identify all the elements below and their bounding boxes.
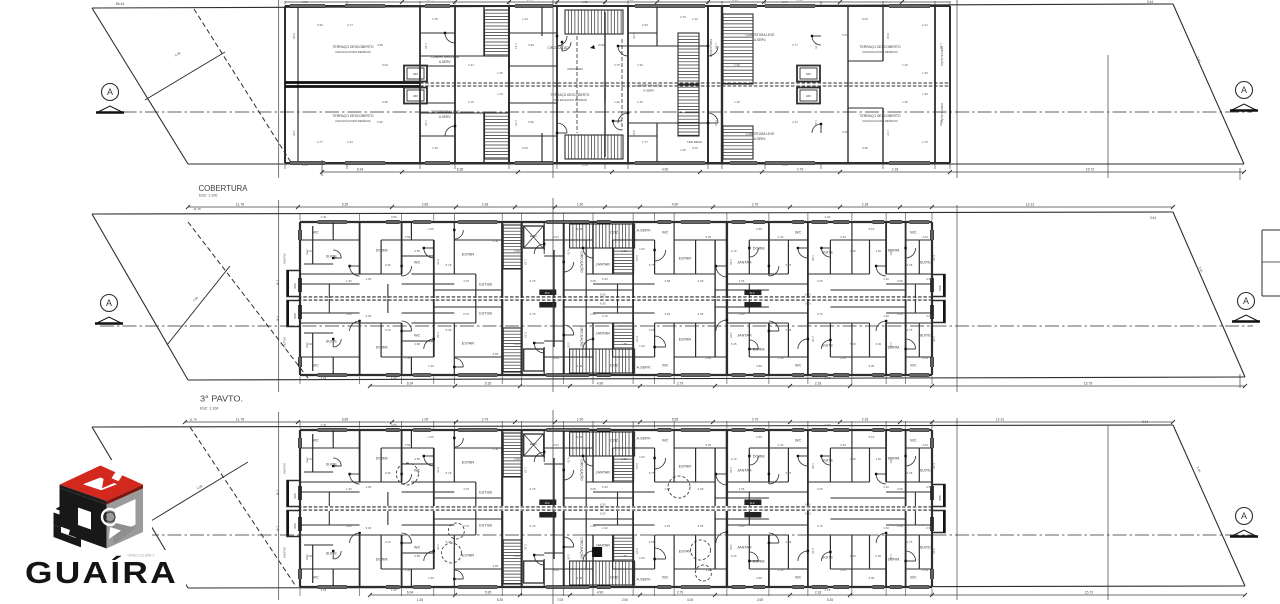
svg-text:A: A (1241, 511, 1247, 521)
svg-text:6.30: 6.30 (366, 526, 372, 530)
svg-text:5.35: 5.35 (577, 435, 583, 439)
svg-text:6.30: 6.30 (805, 302, 811, 306)
svg-text:7.05: 7.05 (557, 598, 563, 602)
svg-text:0.75: 0.75 (635, 548, 639, 554)
svg-text:1.00: 1.00 (897, 312, 903, 316)
svg-text:6.30: 6.30 (385, 471, 391, 475)
svg-text:2.68: 2.68 (514, 249, 520, 253)
svg-text:3.95: 3.95 (632, 33, 636, 39)
svg-text:12.31: 12.31 (1026, 203, 1035, 207)
svg-text:1.40: 1.40 (883, 277, 889, 281)
svg-text:SAC.: SAC. (938, 495, 942, 502)
svg-text:1.35: 1.35 (627, 0, 634, 2)
svg-text:ESC: 1:100: ESC: 1:100 (199, 194, 217, 198)
svg-text:2.40: 2.40 (321, 215, 327, 219)
svg-text:CIRCULAÇÃO: CIRCULAÇÃO (940, 46, 945, 66)
svg-text:5.15: 5.15 (869, 227, 875, 231)
svg-text:1.50: 1.50 (366, 485, 372, 489)
svg-text:LBO: LBO (806, 72, 811, 76)
svg-text:2.55: 2.55 (825, 588, 831, 592)
svg-text:1.30: 1.30 (883, 314, 889, 318)
svg-text:WC: WC (414, 469, 421, 473)
svg-text:5.35: 5.35 (485, 382, 492, 386)
svg-text:2.18: 2.18 (892, 168, 899, 172)
svg-text:CIRCULAÇÃO: CIRCULAÇÃO (579, 460, 584, 481)
svg-text:4.90: 4.90 (597, 591, 604, 595)
svg-text:2.03: 2.03 (321, 588, 327, 592)
svg-text:4.75: 4.75 (463, 279, 469, 283)
svg-text:N.V.: N.V. (750, 291, 755, 295)
svg-text:1.50: 1.50 (797, 0, 804, 2)
svg-text:2.40: 2.40 (922, 443, 928, 447)
svg-text:2.55: 2.55 (926, 485, 932, 489)
svg-text:2.55: 2.55 (305, 457, 309, 463)
svg-text:5.35: 5.35 (446, 328, 452, 332)
svg-text:SAC.: SAC. (293, 523, 297, 530)
svg-text:1.90: 1.90 (637, 63, 643, 67)
svg-text:6.30: 6.30 (875, 554, 881, 558)
svg-text:SUITE: SUITE (326, 463, 338, 467)
svg-text:3.25: 3.25 (817, 279, 823, 283)
svg-text:1.30: 1.30 (493, 447, 499, 451)
svg-text:2.55: 2.55 (414, 457, 420, 461)
svg-text:5.35: 5.35 (932, 463, 936, 469)
svg-text:3° PAVTO.: 3° PAVTO. (200, 394, 243, 404)
svg-text:1.40: 1.40 (639, 344, 645, 348)
svg-text:6.30: 6.30 (602, 485, 608, 489)
svg-text:GALERIA: GALERIA (283, 463, 287, 475)
svg-text:2.10: 2.10 (850, 249, 856, 253)
svg-text:2.65: 2.65 (567, 554, 571, 560)
svg-text:4.90: 4.90 (672, 203, 679, 207)
svg-text:6.30: 6.30 (385, 263, 391, 267)
svg-text:2.68: 2.68 (514, 457, 520, 461)
svg-text:5.35: 5.35 (705, 443, 711, 447)
svg-text:1.40: 1.40 (778, 235, 784, 239)
svg-text:2.41: 2.41 (922, 23, 928, 27)
svg-text:2.68: 2.68 (414, 342, 420, 346)
svg-text:JANTAR: JANTAR (596, 544, 611, 548)
svg-text:2.75: 2.75 (922, 140, 928, 144)
svg-text:1.10: 1.10 (497, 92, 503, 96)
svg-text:2.77: 2.77 (792, 43, 798, 47)
svg-text:4.90: 4.90 (698, 279, 704, 283)
svg-text:1.45: 1.45 (637, 100, 643, 104)
svg-text:GALERIA: GALERIA (283, 547, 287, 559)
svg-text:15.79: 15.79 (1084, 382, 1093, 386)
svg-text:SAC.: SAC. (293, 313, 297, 320)
svg-text:GALERIA: GALERIA (283, 253, 287, 265)
svg-text:2.18: 2.18 (815, 382, 822, 386)
svg-text:1.10: 1.10 (582, 163, 588, 167)
svg-text:5.35: 5.35 (457, 168, 464, 172)
svg-text:1.50: 1.50 (739, 524, 745, 528)
svg-text:1.30: 1.30 (493, 239, 499, 243)
svg-text:A.SERV.: A.SERV. (637, 229, 652, 233)
svg-text:SUITE: SUITE (920, 546, 932, 550)
svg-text:3.05: 3.05 (391, 423, 397, 427)
svg-text:1.45: 1.45 (302, 163, 308, 167)
svg-text:WC: WC (662, 231, 669, 235)
svg-text:2.65: 2.65 (621, 457, 627, 461)
svg-text:2.68: 2.68 (664, 279, 670, 283)
svg-text:5.15: 5.15 (436, 467, 440, 473)
svg-text:A.SERV.: A.SERV. (637, 578, 652, 582)
svg-text:SUITE: SUITE (822, 556, 834, 560)
svg-text:SUITE: SUITE (822, 251, 834, 255)
svg-text:ESTUB: ESTUB (479, 283, 492, 287)
svg-text:3.95: 3.95 (382, 100, 388, 104)
svg-text:WC: WC (312, 364, 319, 368)
svg-text:6.30: 6.30 (805, 512, 811, 516)
svg-text:2.75: 2.75 (814, 43, 818, 49)
svg-text:5.15: 5.15 (731, 342, 737, 346)
svg-text:5.35: 5.35 (932, 255, 936, 261)
svg-text:1.30: 1.30 (346, 487, 352, 491)
svg-text:3.44: 3.44 (1150, 216, 1156, 220)
svg-text:2.10: 2.10 (602, 526, 608, 530)
svg-text:2.10: 2.10 (811, 548, 815, 554)
svg-text:6.30: 6.30 (805, 503, 811, 507)
svg-text:SAC.: SAC. (293, 493, 297, 500)
svg-text:WC: WC (795, 364, 802, 368)
svg-text:WC: WC (414, 261, 421, 265)
svg-text:5.35: 5.35 (869, 576, 875, 580)
svg-text:SAC.: SAC. (293, 283, 297, 290)
svg-text:0.90: 0.90 (377, 120, 383, 124)
svg-text:2.65: 2.65 (346, 312, 352, 316)
svg-text:3.05: 3.05 (590, 487, 596, 491)
svg-text:2.55: 2.55 (305, 249, 309, 255)
svg-text:2.03: 2.03 (553, 443, 559, 447)
svg-text:2.68: 2.68 (889, 457, 893, 463)
svg-text:4.90: 4.90 (729, 332, 733, 338)
svg-text:5.35: 5.35 (827, 598, 833, 602)
svg-text:1.30: 1.30 (778, 356, 784, 360)
svg-text:5.35: 5.35 (705, 235, 711, 239)
svg-text:2.68: 2.68 (889, 249, 893, 255)
svg-text:CIRCULAÇÃO: CIRCULAÇÃO (579, 326, 584, 347)
svg-text:CIRCULAÇÃO: CIRCULAÇÃO (579, 538, 584, 559)
svg-text:3.05: 3.05 (897, 279, 903, 283)
svg-text:3.25: 3.25 (907, 471, 913, 475)
svg-text:1.10: 1.10 (939, 43, 943, 49)
svg-text:5.15: 5.15 (850, 554, 856, 558)
svg-text:A.SERV.: A.SERV. (439, 115, 452, 119)
svg-text:4.75: 4.75 (567, 249, 571, 255)
svg-text:1.35: 1.35 (424, 120, 428, 126)
svg-text:5.15: 5.15 (446, 471, 452, 475)
svg-text:2.55: 2.55 (926, 277, 932, 281)
svg-text:2.41: 2.41 (792, 120, 798, 124)
svg-text:LBO: LBO (413, 72, 418, 76)
svg-text:3.95: 3.95 (528, 43, 534, 47)
svg-text:A.SERV.: A.SERV. (439, 60, 452, 64)
svg-text:1.50: 1.50 (405, 235, 411, 239)
svg-text:2.40: 2.40 (840, 235, 846, 239)
svg-text:1.40: 1.40 (889, 554, 893, 560)
svg-text:2.75: 2.75 (680, 15, 686, 19)
svg-text:4.90: 4.90 (553, 568, 559, 572)
svg-text:DORM.: DORM. (376, 457, 389, 461)
svg-text:2.68: 2.68 (926, 314, 932, 318)
svg-text:5.15: 5.15 (436, 259, 440, 265)
svg-text:0.75: 0.75 (786, 263, 792, 267)
svg-text:JANTAR: JANTAR (737, 261, 752, 265)
svg-text:2.68: 2.68 (756, 576, 762, 580)
svg-text:LBO: LBO (806, 94, 811, 98)
svg-text:DORM.: DORM. (376, 249, 389, 253)
svg-text:5.35: 5.35 (577, 227, 583, 231)
svg-text:2.68: 2.68 (436, 544, 440, 550)
svg-text:(USO EXCLUSIVO RESÍDUO): (USO EXCLUSIVO RESÍDUO) (862, 119, 898, 123)
svg-text:A.SERV.: A.SERV. (637, 366, 652, 370)
svg-text:3.25: 3.25 (932, 548, 936, 554)
svg-text:DORM.: DORM. (376, 558, 389, 562)
svg-text:2.18: 2.18 (482, 203, 489, 207)
svg-text:2.68: 2.68 (664, 487, 670, 491)
svg-text:A.SERV.: A.SERV. (754, 137, 767, 141)
svg-text:1.00: 1.00 (428, 435, 434, 439)
svg-text:2.55: 2.55 (756, 227, 762, 231)
svg-text:2.03: 2.03 (922, 568, 928, 572)
svg-text:COBERTURA LEVE: COBERTURA LEVE (746, 33, 775, 37)
svg-text:1.35: 1.35 (902, 100, 908, 104)
svg-text:6.30: 6.30 (805, 293, 811, 297)
svg-text:5.35: 5.35 (497, 598, 503, 602)
svg-text:2.03: 2.03 (635, 255, 639, 261)
svg-text:6.30: 6.30 (729, 259, 733, 265)
svg-text:2.77: 2.77 (347, 23, 353, 27)
svg-text:2.77: 2.77 (317, 140, 323, 144)
svg-text:2.75: 2.75 (514, 120, 518, 126)
svg-text:4.75: 4.75 (907, 540, 913, 544)
svg-text:+5.00: +5.00 (597, 43, 605, 47)
svg-text:2.55: 2.55 (414, 249, 420, 253)
svg-text:JANTAR: JANTAR (596, 332, 611, 336)
svg-text:PENDURAL: PENDURAL (603, 88, 607, 103)
svg-text:3.44: 3.44 (1147, 0, 1153, 4)
svg-text:2.40: 2.40 (840, 443, 846, 447)
svg-text:1.40: 1.40 (883, 485, 889, 489)
svg-text:1.40: 1.40 (639, 556, 645, 560)
svg-text:5.15: 5.15 (731, 554, 737, 558)
svg-text:1.00: 1.00 (305, 554, 309, 560)
svg-text:2.40: 2.40 (321, 423, 327, 427)
svg-text:WC: WC (312, 231, 319, 235)
svg-text:A: A (1241, 85, 1247, 95)
svg-text:4.90: 4.90 (825, 423, 831, 427)
svg-text:2.41: 2.41 (514, 43, 518, 49)
svg-text:2.65: 2.65 (493, 352, 499, 356)
svg-text:2.68: 2.68 (926, 526, 932, 530)
svg-text:1.50: 1.50 (621, 554, 627, 558)
svg-text:1.00: 1.00 (305, 342, 309, 348)
svg-text:A: A (1243, 296, 1249, 306)
svg-text:2.65: 2.65 (346, 524, 352, 528)
svg-text:2.41: 2.41 (468, 63, 474, 67)
svg-text:1.90: 1.90 (814, 120, 818, 126)
svg-text:6.30: 6.30 (729, 467, 733, 473)
svg-text:ESTAR: ESTAR (679, 257, 692, 261)
svg-text:N.V.: N.V. (750, 501, 755, 505)
svg-text:0.90: 0.90 (317, 23, 323, 27)
svg-text:1.90: 1.90 (577, 418, 584, 422)
svg-text:1.30: 1.30 (524, 467, 528, 473)
svg-text:TER.DESC.: TER.DESC. (687, 140, 703, 144)
svg-text:GALERIA: GALERIA (283, 337, 287, 349)
svg-text:1.30: 1.30 (346, 279, 352, 283)
svg-text:COZ.: COZ. (610, 231, 619, 235)
svg-text:WC: WC (312, 576, 319, 580)
svg-text:SUITE: SUITE (920, 261, 932, 265)
svg-text:SUITE: SUITE (920, 334, 932, 338)
svg-text:ELEV.: ELEV. (530, 234, 537, 238)
svg-text:DORM.: DORM. (753, 348, 766, 352)
svg-text:COBERTURA LEVE: COBERTURA LEVE (746, 132, 775, 136)
svg-text:2.79: 2.79 (677, 591, 684, 595)
svg-text:ESTUB: ESTUB (479, 491, 492, 495)
svg-text:N.V.: N.V. (545, 501, 550, 505)
svg-text:(USO EXCLUSIVO RESÍDUO): (USO EXCLUSIVO RESÍDUO) (335, 50, 371, 54)
svg-text:4.90: 4.90 (825, 215, 831, 219)
svg-text:A.SERV.: A.SERV. (754, 38, 767, 42)
svg-text:2.03: 2.03 (922, 356, 928, 360)
svg-text:1.90: 1.90 (614, 100, 620, 104)
svg-text:3.05: 3.05 (786, 328, 792, 332)
svg-text:1.40: 1.40 (428, 364, 434, 368)
svg-text:5.35: 5.35 (524, 332, 528, 338)
svg-text:A.SERV.: A.SERV. (643, 89, 655, 93)
svg-text:DORM.: DORM. (753, 247, 766, 251)
svg-text:56.44: 56.44 (116, 2, 125, 6)
svg-text:TERRAÇO DESCOBERTO: TERRAÇO DESCOBERTO (551, 93, 590, 97)
svg-text:WC: WC (795, 439, 802, 443)
svg-text:15.72: 15.72 (1086, 168, 1095, 172)
svg-text:0.75: 0.75 (530, 312, 536, 316)
svg-text:2.41: 2.41 (782, 163, 788, 167)
svg-text:1.90: 1.90 (734, 63, 740, 67)
svg-text:1.05: 1.05 (422, 418, 429, 422)
svg-text:3.25: 3.25 (907, 263, 913, 267)
svg-text:SUITE: SUITE (822, 344, 834, 348)
svg-text:0.75: 0.75 (463, 524, 469, 528)
svg-text:0.75: 0.75 (530, 524, 536, 528)
svg-text:4.75: 4.75 (817, 524, 823, 528)
svg-text:5.35: 5.35 (485, 591, 492, 595)
svg-text:3.25: 3.25 (514, 554, 520, 558)
svg-text:6.30: 6.30 (600, 503, 606, 507)
svg-text:WC: WC (910, 364, 917, 368)
svg-text:11.78: 11.78 (193, 207, 201, 211)
svg-text:2.10: 2.10 (850, 457, 856, 461)
svg-text:2.05: 2.05 (732, 0, 739, 2)
svg-text:2.10: 2.10 (731, 457, 737, 461)
svg-text:11.78: 11.78 (236, 418, 244, 422)
svg-text:ESTUB: ESTUB (479, 312, 492, 316)
svg-text:6.85: 6.85 (342, 418, 349, 422)
svg-text:A: A (106, 298, 112, 308)
svg-text:2.79: 2.79 (797, 168, 804, 172)
svg-text:2.79: 2.79 (752, 418, 759, 422)
svg-text:ESTAR: ESTAR (462, 253, 475, 257)
svg-text:4.90: 4.90 (729, 544, 733, 550)
svg-text:0.75: 0.75 (635, 336, 639, 342)
svg-text:ESTAR: ESTAR (462, 554, 475, 558)
svg-text:1.30: 1.30 (778, 568, 784, 572)
svg-text:1.30: 1.30 (524, 259, 528, 265)
svg-text:(USO EXCLUSIVO RESÍDUO): (USO EXCLUSIVO RESÍDUO) (335, 119, 371, 123)
svg-text:5.15: 5.15 (850, 342, 856, 346)
svg-text:3.25: 3.25 (932, 336, 936, 342)
svg-text:ESTAR: ESTAR (462, 342, 475, 346)
svg-text:WC: WC (795, 231, 802, 235)
svg-text:11.78: 11.78 (236, 203, 244, 207)
svg-text:3.05: 3.05 (590, 279, 596, 283)
svg-text:1.10: 1.10 (692, 17, 698, 21)
svg-text:COBERTURA: COBERTURA (199, 183, 248, 193)
svg-text:2.77: 2.77 (642, 140, 648, 144)
svg-text:1.90: 1.90 (577, 203, 584, 207)
svg-text:0.75: 0.75 (786, 471, 792, 475)
svg-text:1.40: 1.40 (527, 0, 534, 2)
svg-text:ESC: 1:100: ESC: 1:100 (200, 407, 218, 411)
svg-text:2.79: 2.79 (752, 203, 759, 207)
svg-text:(USO EXCLUSIVO RESÍDUO): (USO EXCLUSIVO RESÍDUO) (553, 99, 587, 102)
svg-text:3.95: 3.95 (377, 43, 383, 47)
svg-text:6.30: 6.30 (600, 302, 606, 306)
svg-text:1.00: 1.00 (590, 524, 596, 528)
svg-text:2.65: 2.65 (567, 342, 571, 348)
svg-text:2.68: 2.68 (414, 554, 420, 558)
svg-text:DORM.: DORM. (376, 346, 389, 350)
svg-text:SAC.: SAC. (938, 285, 942, 292)
svg-text:3.25: 3.25 (664, 524, 670, 528)
svg-text:2.55: 2.55 (756, 435, 762, 439)
svg-text:1.00: 1.00 (639, 455, 645, 459)
svg-text:DORM.: DORM. (753, 560, 766, 564)
svg-text:4.75: 4.75 (530, 487, 536, 491)
svg-text:2.18: 2.18 (862, 203, 869, 207)
svg-text:3.05: 3.05 (786, 540, 792, 544)
svg-text:2.79: 2.79 (482, 418, 489, 422)
svg-text:1.45: 1.45 (432, 17, 438, 21)
svg-text:2.75: 2.75 (614, 63, 620, 67)
svg-text:WC: WC (662, 364, 669, 368)
svg-text:2.40: 2.40 (577, 364, 583, 368)
svg-text:1.35: 1.35 (714, 43, 718, 49)
svg-text:2.79: 2.79 (677, 382, 684, 386)
svg-text:JANTAR: JANTAR (596, 471, 611, 475)
svg-text:6.30: 6.30 (600, 512, 606, 516)
svg-text:2.68: 2.68 (436, 332, 440, 338)
svg-text:COBERTURA LEVE: COBERTURA LEVE (431, 110, 460, 114)
svg-text:LBO: LBO (413, 94, 418, 98)
svg-text:2.10: 2.10 (731, 249, 737, 253)
svg-text:2.18: 2.18 (815, 591, 822, 595)
svg-text:2.68: 2.68 (756, 364, 762, 368)
svg-text:2.40: 2.40 (705, 356, 711, 360)
svg-text:WC: WC (662, 576, 669, 580)
svg-text:2.10: 2.10 (385, 540, 391, 544)
svg-text:WC: WC (414, 546, 421, 550)
svg-text:4.75: 4.75 (530, 279, 536, 283)
svg-text:SUITE: SUITE (326, 552, 338, 556)
svg-text:2.75: 2.75 (468, 100, 474, 104)
svg-text:TERRAÇO DESCOBERTO: TERRAÇO DESCOBERTO (859, 114, 900, 118)
svg-text:4.75: 4.75 (907, 328, 913, 332)
svg-text:1.50: 1.50 (875, 457, 881, 461)
